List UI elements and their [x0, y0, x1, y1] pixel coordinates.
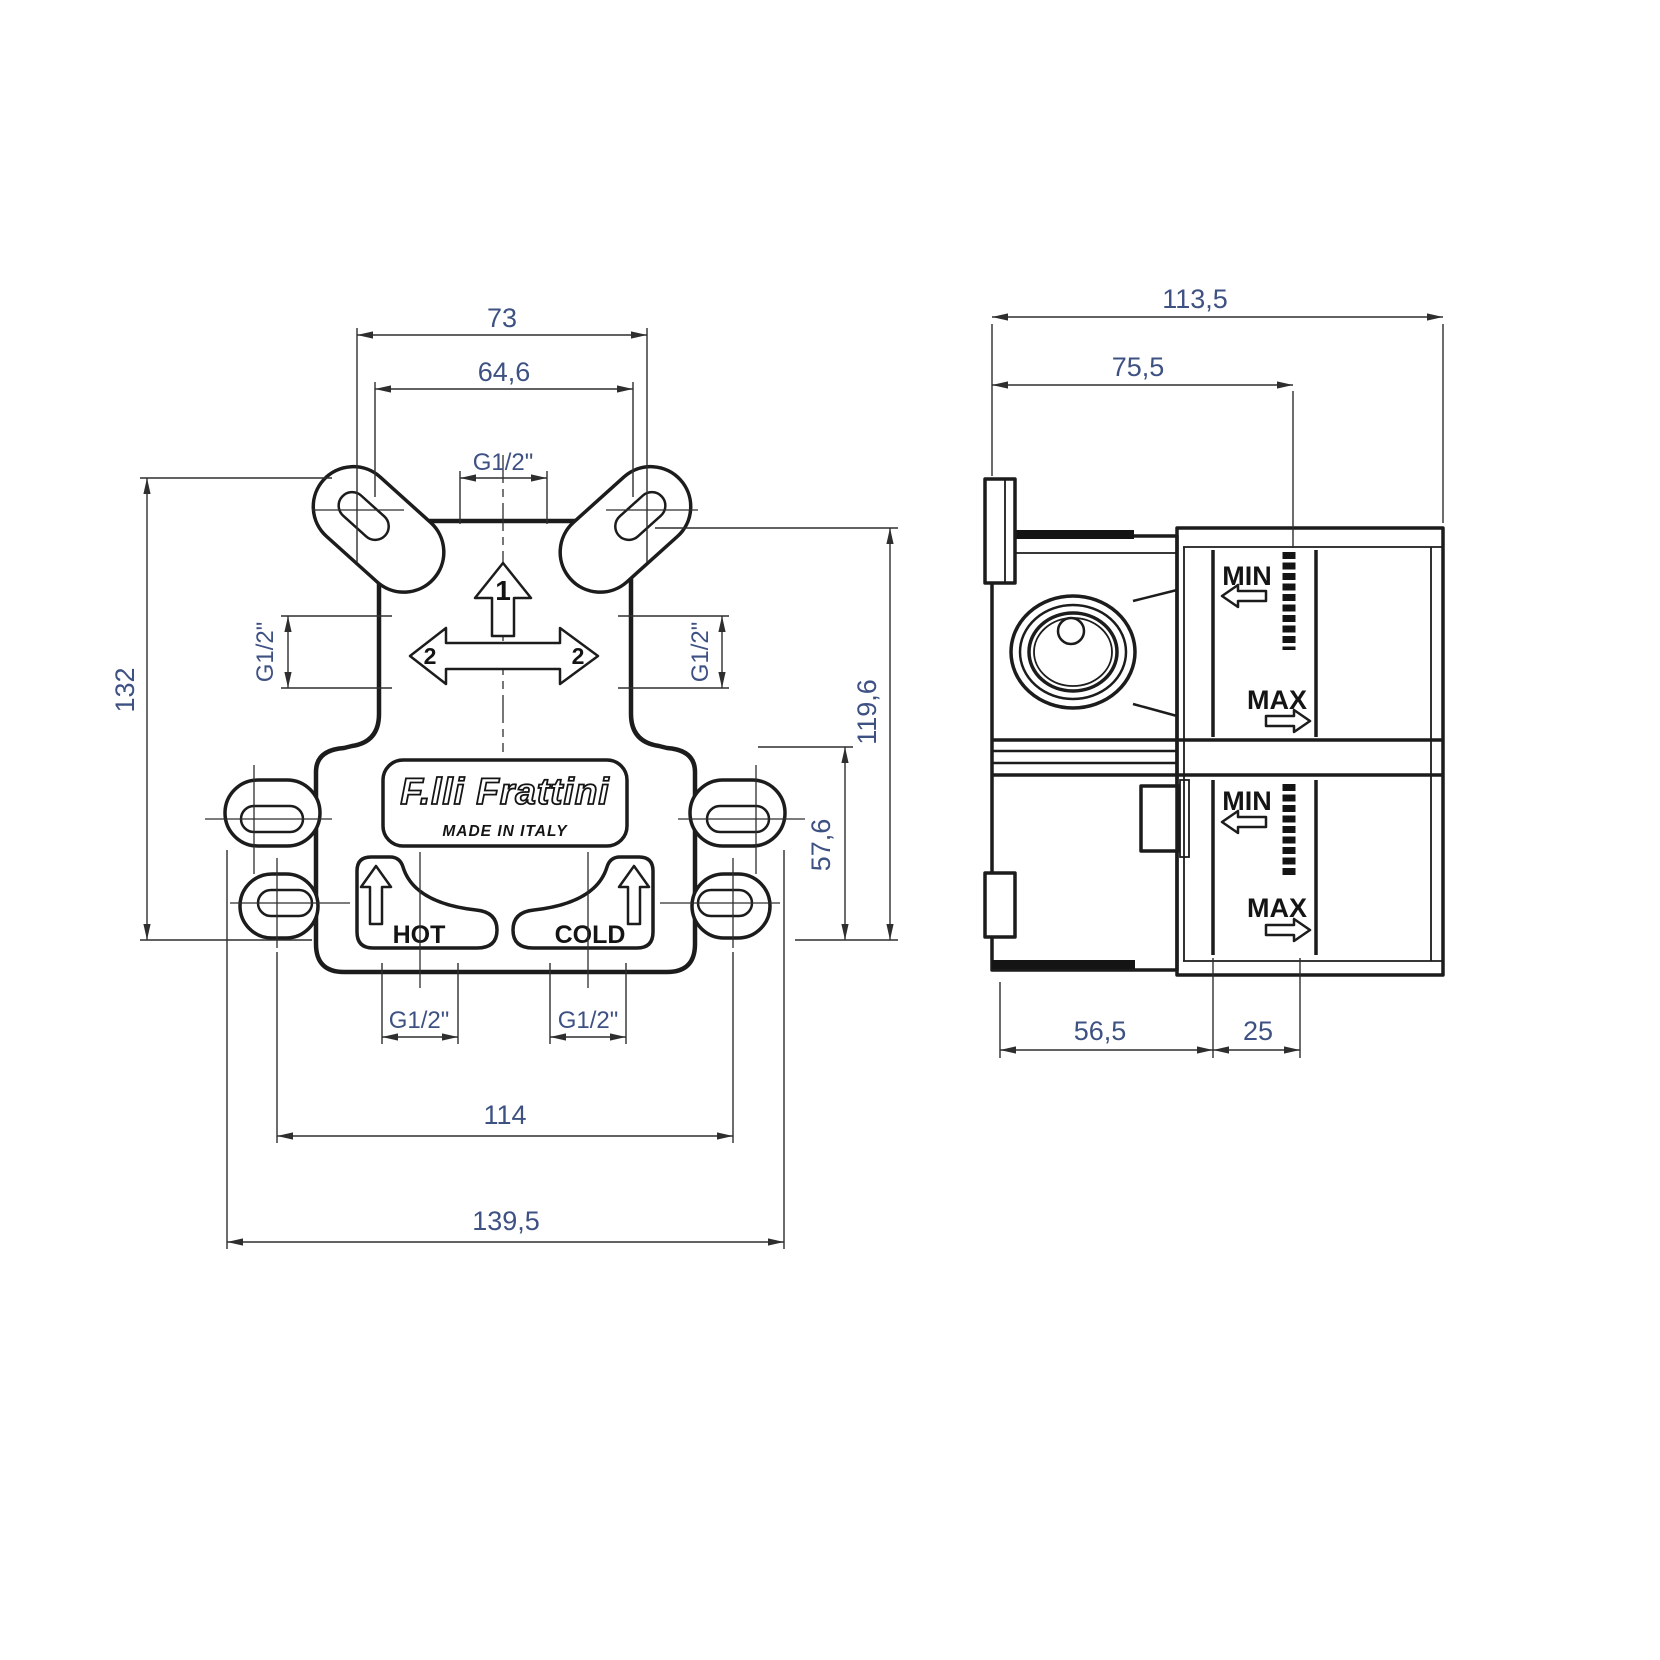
- lug-outline: [240, 874, 318, 938]
- dim-label-lug-span-top: 73: [487, 303, 517, 333]
- side-lug-upper-left: [205, 765, 332, 874]
- brand-logo-text: F.lli Frattini: [400, 771, 609, 812]
- dim-label-port-hot: G1/2": [389, 1007, 450, 1034]
- mounting-ear-top-left: [297, 450, 461, 608]
- min-label: MIN: [1222, 561, 1272, 591]
- outlet-2-left-label: 2: [424, 643, 437, 669]
- dim-label-adjust-range: 25: [1243, 1016, 1273, 1046]
- dim-label-port-cold: G1/2": [558, 1007, 619, 1034]
- dim-label-lower-height: 57,6: [806, 819, 836, 872]
- ear-outline: [544, 450, 708, 608]
- mounting-ear-top-right: [544, 450, 708, 608]
- dim-label-overall-height: 132: [110, 667, 140, 712]
- tab-outline: [985, 479, 1015, 583]
- hot-label: HOT: [393, 921, 446, 949]
- flange-tab-lower-left: [985, 873, 1015, 937]
- brand-plaque: F.lli Frattini MADE IN ITALY: [383, 760, 627, 846]
- side-body-top-seal: [1016, 530, 1134, 539]
- dim-label-body-depth: 56,5: [1074, 1016, 1127, 1046]
- dim-label-overall-width: 139,5: [472, 1206, 540, 1236]
- lug-outline: [225, 780, 320, 846]
- side-lug-lower-left: [230, 858, 350, 948]
- front-view: 1 2 2 F.lli Frattini MADE IN ITALY HOT C…: [110, 303, 898, 1249]
- max-label: MAX: [1247, 893, 1307, 923]
- valve-installation-drawing: 1 2 2 F.lli Frattini MADE IN ITALY HOT C…: [0, 0, 1660, 1660]
- dim-label-port-right: G1/2": [687, 622, 714, 683]
- side-view: MIN MAX MIN MAX 113,5 75,5: [985, 284, 1443, 1058]
- min-label: MIN: [1222, 786, 1272, 816]
- protection-box-outline: [1177, 528, 1443, 975]
- lug-outline: [692, 874, 770, 938]
- outlet-1-label: 1: [495, 575, 511, 606]
- dim-label-overall-depth: 113,5: [1162, 284, 1228, 314]
- technical-drawing-page: 1 2 2 F.lli Frattini MADE IN ITALY HOT C…: [0, 0, 1660, 1660]
- dim-label-body-height: 119,6: [852, 679, 882, 745]
- side-lug-lower-right: [660, 858, 780, 948]
- side-body-outline: [992, 536, 1177, 970]
- made-in-italy-text: MADE IN ITALY: [442, 823, 568, 840]
- tab-outline: [1141, 786, 1179, 851]
- ear-outline: [297, 450, 461, 608]
- dim-label-port-left: G1/2": [252, 622, 279, 683]
- side-body-bottom-seal: [992, 960, 1135, 969]
- dim-label-hole-span-top: 64,6: [478, 357, 531, 387]
- cold-label: COLD: [555, 921, 626, 949]
- dim-label-hole-span-bottom: 114: [483, 1100, 526, 1130]
- cold-inlet-panel: COLD: [513, 857, 653, 949]
- lug-outline: [690, 780, 785, 846]
- hot-inlet-panel: HOT: [357, 857, 497, 949]
- dim-label-port-top: G1/2": [473, 449, 534, 476]
- max-label: MAX: [1247, 685, 1307, 715]
- dim-label-depth-to-marker: 75,5: [1112, 352, 1165, 382]
- outlet-2-right-label: 2: [572, 643, 585, 669]
- flange-tab-top-left: [985, 479, 1015, 583]
